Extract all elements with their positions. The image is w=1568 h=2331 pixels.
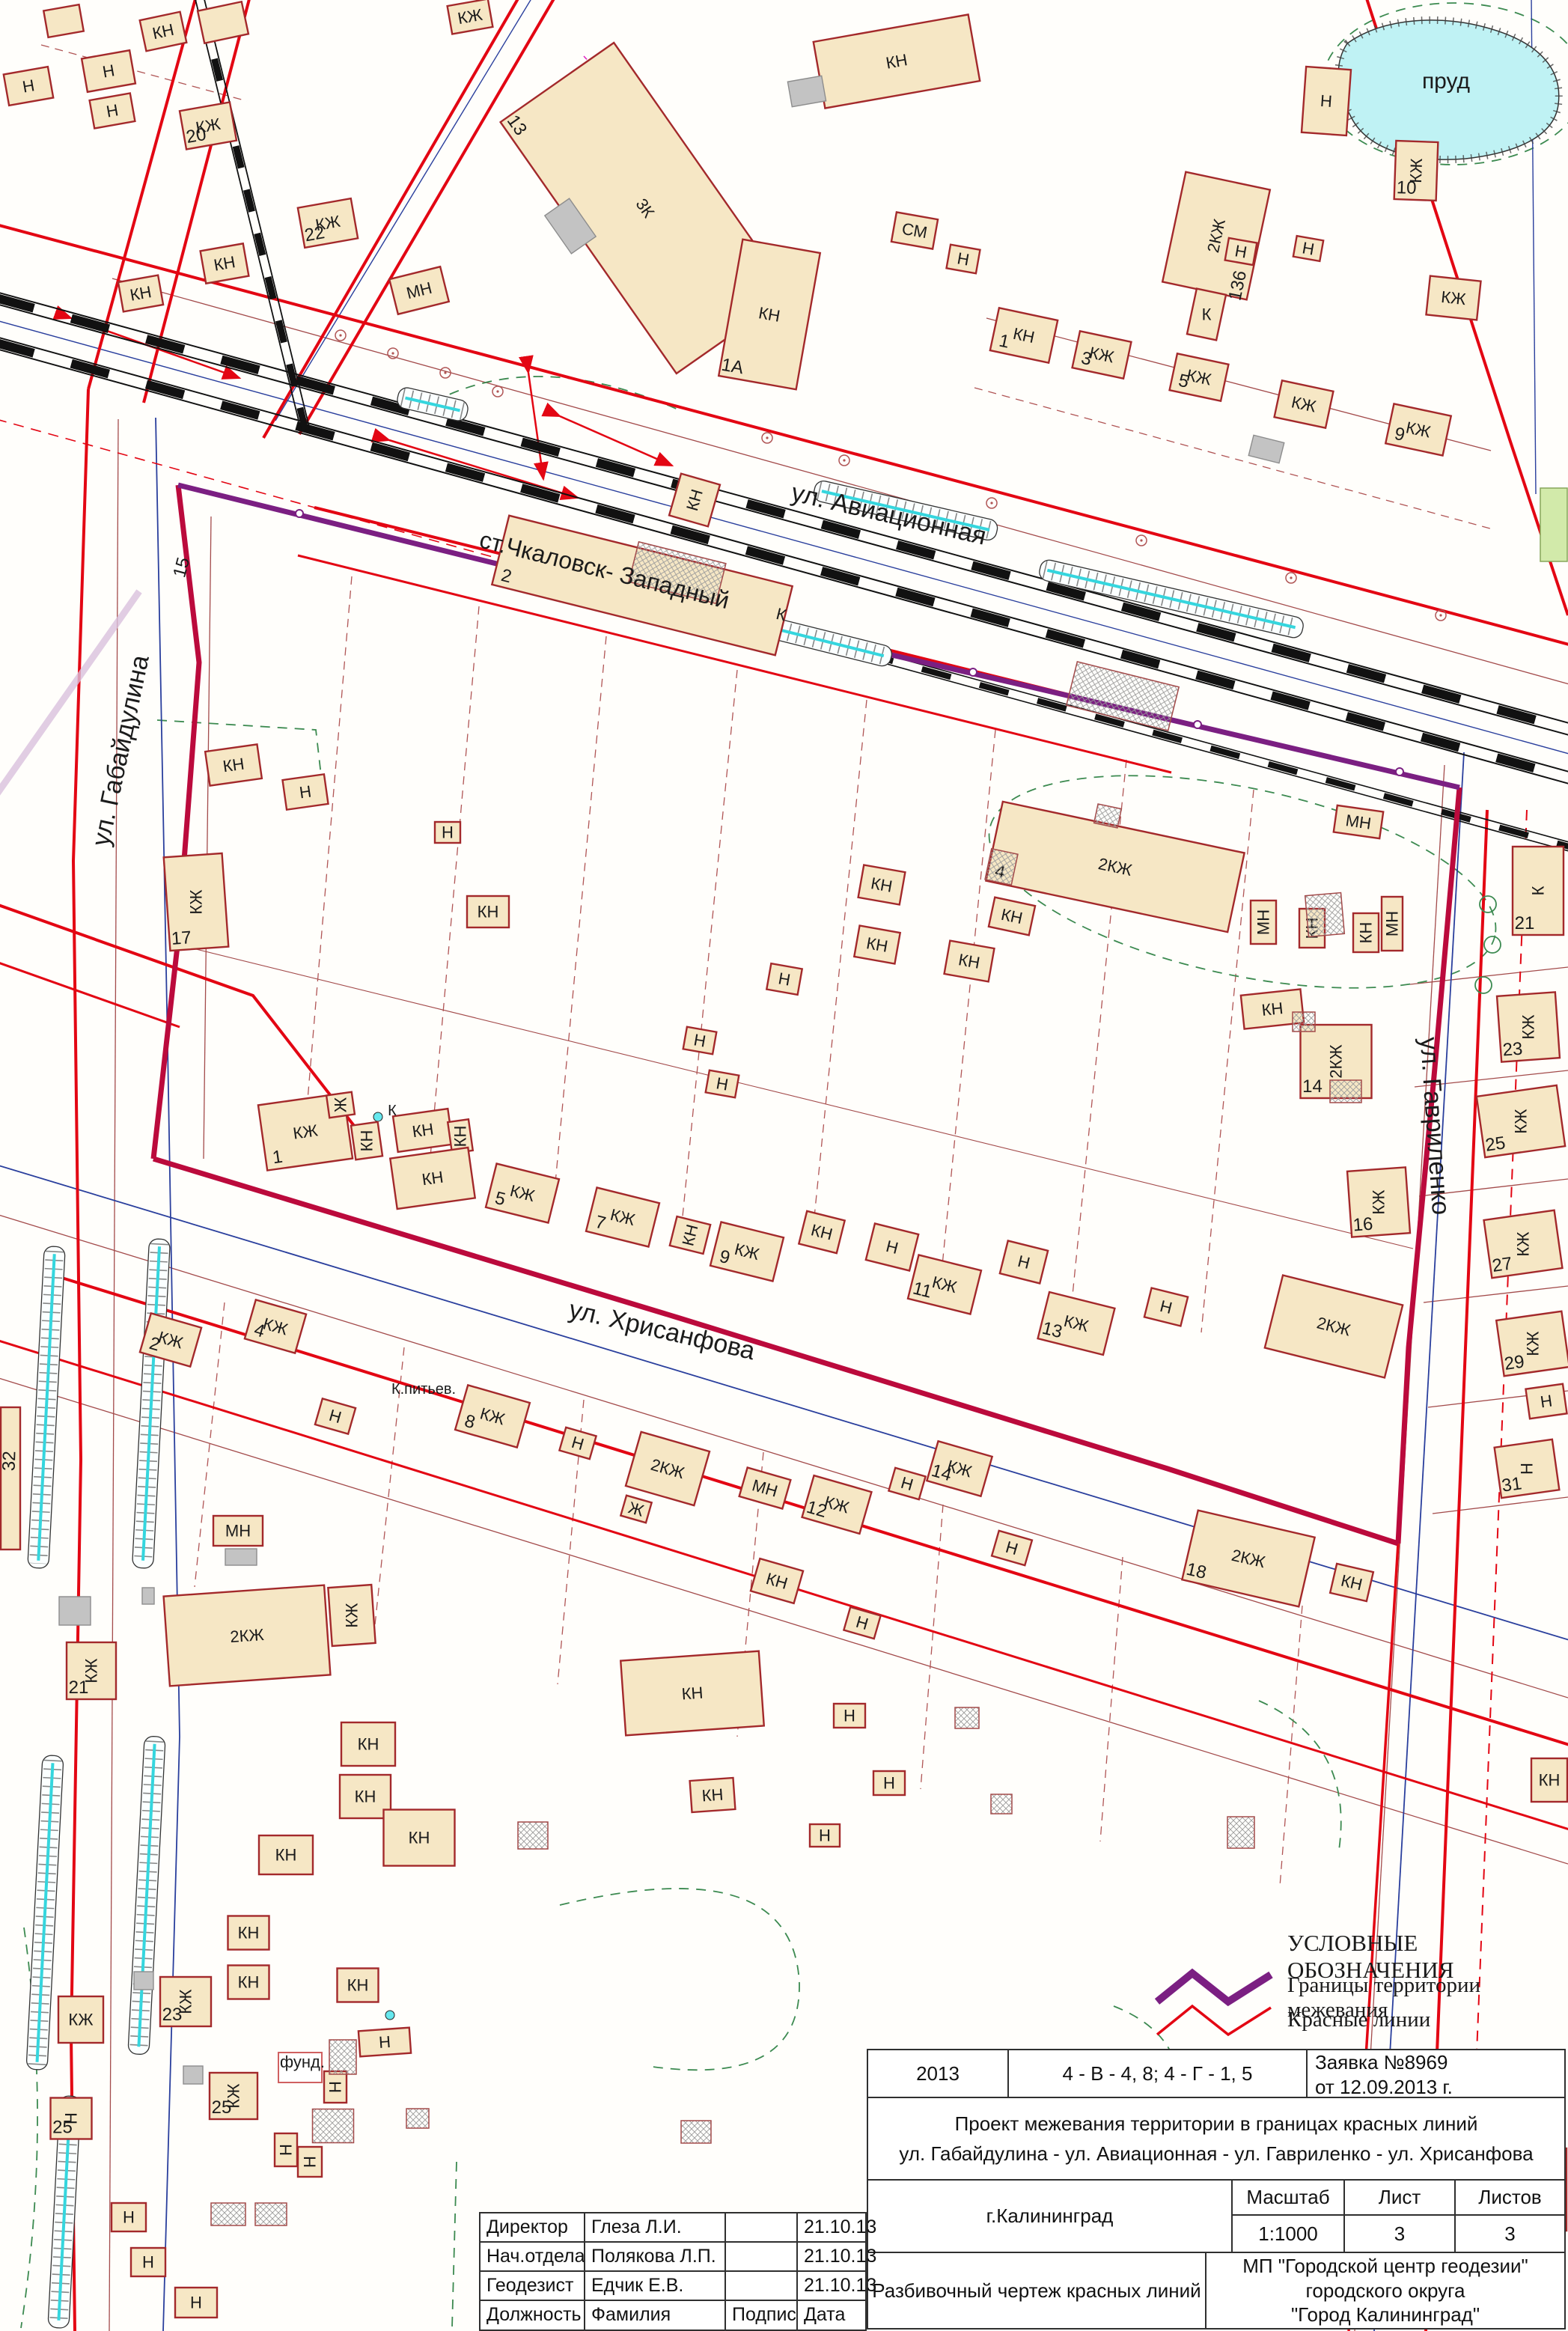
building-label: КН (238, 1924, 260, 1942)
building-number: 17 (171, 927, 192, 949)
building-label: К (1202, 305, 1212, 323)
building-label: 2КЖ (1327, 1044, 1346, 1079)
building: Н (282, 774, 328, 809)
tb-role-cell: Геодезист (479, 2270, 585, 2301)
building-label: МН (225, 1522, 251, 1541)
building: Н (873, 1771, 905, 1795)
building-label: Н (301, 2156, 320, 2168)
gray-annex (787, 76, 826, 106)
tb-sign-cell (724, 2212, 798, 2243)
building: Н (810, 1824, 840, 1847)
building: КЖ13 (1038, 1292, 1115, 1355)
building: Н (947, 245, 980, 273)
building-label: КН (478, 903, 499, 921)
building: Н (1302, 67, 1351, 135)
hatched-structure (518, 1822, 548, 1849)
building: Н (1000, 1241, 1048, 1284)
hatched-structure (329, 2040, 356, 2074)
map-label: ул. Хрисанфова (567, 1295, 758, 1365)
tb-sign-cell: Подпись (724, 2300, 798, 2331)
legend-item-redlines: Красные линии (1287, 2008, 1430, 2032)
building: Н (683, 1027, 717, 1054)
building: Н (1144, 1288, 1188, 1326)
building: 2КЖ (164, 1585, 331, 1686)
building-label: КН (957, 950, 982, 972)
building: Н25 (51, 2098, 92, 2139)
building-label: КН (1260, 999, 1284, 1020)
building-label: КН (238, 1973, 260, 1992)
building-number: 25 (212, 2097, 232, 2118)
building-label: Н (844, 1707, 855, 1725)
map-label: К (388, 1103, 397, 1119)
building: 2КЖ (1265, 1276, 1403, 1378)
building: КЖ16 (1347, 1167, 1410, 1237)
building: КН (384, 1810, 455, 1866)
cadastral-map-sheet: { "legend": { "title": "УСЛОВНЫЕ ОБОЗНАЧ… (0, 0, 1568, 2331)
building-label: КН (757, 303, 782, 326)
tree-symbol-green (1475, 977, 1492, 993)
building: КН (670, 1216, 710, 1254)
map-label: пруд (1422, 69, 1470, 94)
building: КН (351, 1122, 382, 1160)
building-label: Н (1518, 1463, 1537, 1475)
legend-red-zigzag (1157, 2006, 1271, 2035)
building: Н (359, 2028, 411, 2057)
building-label: КН (885, 50, 909, 73)
building-label: КЖ (1440, 287, 1467, 308)
building: КН (1353, 913, 1379, 952)
building: Н (315, 1398, 356, 1433)
building-label: КЖ (1524, 1331, 1543, 1356)
gray-annex (1248, 435, 1284, 463)
building: КН (858, 865, 906, 904)
building-label: Н (190, 2294, 202, 2312)
building-label: КН (451, 1126, 470, 1148)
building-label: КН (347, 1976, 369, 1995)
building-label: КН (129, 282, 153, 305)
building: КН (854, 926, 900, 964)
building-label: КН (358, 1130, 376, 1152)
building: КН (338, 1969, 379, 2002)
building: Н (766, 963, 802, 995)
building: Н (992, 1531, 1032, 1565)
tb-sheet-label: Лист (1343, 2179, 1456, 2216)
building-label: КН (222, 755, 245, 776)
building: Н (888, 1468, 925, 1499)
building: КЖ11 (908, 1255, 981, 1314)
building-number: 21 (1515, 913, 1535, 933)
building-number: 25 (52, 2118, 73, 2138)
building-label: КН (701, 1785, 724, 1806)
tb-project-title: Проект межевания территории в границах к… (867, 2097, 1566, 2181)
building-label: МН (1254, 909, 1273, 935)
building: КН (467, 896, 509, 927)
legend-swatches (1151, 1952, 1282, 2042)
tb-drawing-title: Разбивочный чертеж красных линий (867, 2252, 1206, 2330)
building-label: КН (213, 252, 237, 275)
building-label: КН (358, 1735, 379, 1754)
building: КЖ (328, 1585, 375, 1646)
building-number: 27 (1491, 1253, 1513, 1276)
building-label: МН (1383, 911, 1402, 936)
tb-request: Заявка №8969 от 12.09.2013 г. (1306, 2049, 1566, 2098)
tree-symbol-green (1484, 936, 1501, 953)
building: КН (259, 1835, 313, 1874)
building: МН (389, 266, 449, 314)
building: КЖ17 (164, 853, 229, 951)
building: КЖ9 (710, 1222, 784, 1281)
ditch (765, 617, 894, 668)
building-label: КН (1357, 922, 1376, 944)
building-label: КН (421, 1168, 445, 1189)
building-label: КЖ (343, 1603, 362, 1628)
building-label: Н (1320, 91, 1333, 111)
building-number: 16 (1352, 1214, 1374, 1236)
layer-gray-annexes (59, 76, 1284, 2084)
tb-scale-value: 1:1000 (1231, 2214, 1345, 2253)
hatched-structure (955, 1707, 979, 1728)
building: МН (739, 1468, 791, 1509)
legend-purple-zigzag (1157, 1973, 1271, 2002)
building-number: 10 (1396, 177, 1417, 198)
hatched-structure (211, 2203, 245, 2225)
building: Н (112, 2203, 146, 2231)
building-label: КЖ (68, 2011, 94, 2029)
building-label: Н (277, 2144, 296, 2156)
gray-annex (134, 1972, 153, 1990)
tb-role-cell: Директор (479, 2212, 585, 2243)
building-label: Н (819, 1826, 831, 1845)
building: СМ (891, 212, 938, 249)
tb-date-cell: Дата (796, 2300, 867, 2331)
building: КЖ (1275, 380, 1334, 427)
building: КН (814, 14, 980, 108)
building-label: Н (142, 2253, 154, 2272)
building-label: 2КЖ (229, 1625, 265, 1646)
building: КЖ5 (1170, 353, 1229, 400)
building: КЖ25 (1477, 1085, 1565, 1157)
building: КЖ4 (245, 1299, 306, 1353)
tb-city: г.Калининград (867, 2179, 1233, 2253)
building: Н31 (1495, 1439, 1560, 1498)
building: КЖ20 (180, 102, 237, 149)
hatched-structure (313, 2109, 354, 2143)
building: КЖ8 (455, 1385, 530, 1447)
building-label: Н (883, 1774, 895, 1793)
building: КН1 (990, 308, 1058, 362)
hatched-structure (1227, 1817, 1254, 1848)
tb-role-cell: Нач.отдела (479, 2241, 585, 2272)
building-number: 14 (1302, 1076, 1323, 1097)
building: КН (118, 275, 163, 312)
building: КН (1330, 1564, 1373, 1601)
building: КН (989, 898, 1035, 936)
building: МН (213, 1516, 263, 1546)
building: КЖ5 (486, 1163, 559, 1222)
tb-date-cell: 21.10.13 (796, 2241, 867, 2272)
building: КН (205, 744, 262, 785)
building: Ж (620, 1496, 651, 1523)
tb-name-cell: Полякова Л.П. (584, 2241, 726, 2272)
hatched-structure (985, 849, 1018, 886)
building: К21 (1513, 847, 1564, 935)
tb-name-cell: Едчик Е.В. (584, 2270, 726, 2301)
hatched-structure (1094, 804, 1122, 828)
gray-annex (142, 1588, 154, 1604)
building: КН (201, 243, 249, 283)
building-label: КЖ (187, 889, 206, 915)
building: Н (175, 2288, 217, 2318)
building: Н (90, 94, 135, 129)
building-label: КН (355, 1788, 376, 1806)
building: Н (435, 822, 460, 843)
building: КН (393, 1109, 453, 1152)
hatched-structure (1305, 893, 1345, 937)
building (43, 4, 84, 37)
well (385, 2011, 394, 2020)
building: КН (390, 1148, 475, 1209)
building-label: Н (442, 823, 454, 842)
tb-name-cell: Фамилия (584, 2300, 726, 2331)
building: Н (4, 67, 53, 106)
building: Н (844, 1607, 880, 1639)
tb-name-cell: Глеза Л.И. (584, 2212, 726, 2243)
ditch (28, 1246, 65, 1569)
tb-sign-cell (724, 2270, 798, 2301)
building-number: 31 (1501, 1473, 1523, 1496)
building-number: 23 (1502, 1039, 1524, 1061)
building-number: 23 (162, 2005, 183, 2025)
building: КЖ27 (1484, 1210, 1563, 1278)
building: Н (706, 1070, 739, 1097)
building-label: КН (1539, 1771, 1561, 1790)
building-number: 22 (303, 222, 326, 246)
building-label: КН (865, 933, 890, 956)
building: КЖ (1426, 276, 1480, 320)
building: 2КЖ (626, 1432, 710, 1505)
building: Н (131, 2248, 165, 2276)
tb-date-cell: 21.10.13 (796, 2270, 867, 2301)
building-number: 20 (185, 124, 208, 147)
building: Н (1293, 236, 1323, 261)
building: КЖ23 (160, 1977, 211, 2026)
tb-organization: МП "Городской центр геодезии" городского… (1205, 2252, 1566, 2330)
building: КЖ29 (1496, 1311, 1568, 1377)
building-label: КЖ (292, 1121, 320, 1142)
building: Н (834, 1704, 865, 1728)
building: Н (559, 1427, 596, 1459)
map-label: фунд. (280, 2053, 325, 2071)
building-label: КН (409, 1829, 430, 1847)
tb-date-cell: 21.10.13 (796, 2212, 867, 2243)
building: Н (324, 2071, 347, 2103)
building: КН (341, 1722, 395, 1766)
tb-sign-cell (724, 2241, 798, 2272)
building: Н (1225, 238, 1257, 265)
tb-sheet-code: 4 - В - 4, 8; 4 - Г - 1, 5 (1007, 2049, 1308, 2098)
building: КН (690, 1778, 736, 1812)
legend: УСЛОВНЫЕ ОБОЗНАЧЕНИЯ Границы территории … (1151, 1930, 1567, 2044)
map-label: ул. Габайдулина (87, 653, 155, 849)
gray-annex (59, 1597, 91, 1625)
hatched-structure (681, 2121, 711, 2143)
building: КН (751, 1558, 803, 1603)
hatched-structure (406, 2109, 429, 2128)
building: КЖ10 (1394, 141, 1439, 201)
building-label: КЖ (1370, 1189, 1388, 1215)
map-label: 32 (0, 1451, 19, 1472)
building: КН (228, 1966, 269, 1999)
building: КЖ (448, 0, 493, 34)
building-label: Н (378, 2032, 391, 2052)
building: КЖ7 (586, 1187, 659, 1246)
building-label: КН (411, 1120, 435, 1142)
building: КЖ (58, 1996, 103, 2043)
building: Н (82, 50, 135, 92)
building: Н (1525, 1384, 1567, 1419)
building-label: Ж (332, 1097, 350, 1112)
building: К (1187, 289, 1226, 341)
building: КН (140, 12, 187, 52)
building-label: КЖ (1512, 1109, 1531, 1134)
building: КЖ22 (298, 198, 358, 248)
building: КЖ9 (1385, 403, 1451, 455)
building: КН (1531, 1758, 1567, 1802)
gray-annex (225, 1549, 257, 1565)
building-label: КН (870, 874, 894, 896)
building-label: Н (123, 2208, 135, 2227)
building-number: 29 (1503, 1351, 1525, 1374)
building: КН (799, 1211, 844, 1253)
building-number: 25 (1484, 1133, 1507, 1155)
building-label: КЖ (1519, 1014, 1538, 1040)
building: МН (1334, 805, 1383, 838)
tb-sheets-label: Листов (1454, 2179, 1566, 2216)
building: Н (866, 1223, 918, 1270)
hatched-structure (1293, 1012, 1315, 1032)
tb-sheet-value: 3 (1343, 2214, 1456, 2253)
building: КЖ23 (1497, 992, 1560, 1061)
building: КЖ12 (802, 1475, 872, 1534)
building: 2КЖ136 (1162, 172, 1270, 303)
green-area (1540, 488, 1567, 561)
building-label: Н (326, 2081, 345, 2093)
tb-scale-label: Масштаб (1231, 2179, 1345, 2216)
building: КН (945, 941, 995, 982)
tb-sheets-value: 3 (1454, 2214, 1566, 2253)
building-number: 1А (720, 355, 745, 379)
building: Н (275, 2133, 297, 2166)
building-label: МН (1344, 811, 1372, 833)
building-number: 21 (69, 1678, 89, 1698)
building: Ж (326, 1092, 355, 1118)
boundary-red-lines-crimson (153, 485, 199, 1159)
building: КЖ25 (210, 2073, 257, 2119)
building: КЖ3 (1073, 331, 1132, 378)
tb-year: 2013 (867, 2049, 1009, 2098)
building: КЖ14 (927, 1441, 992, 1496)
building: МН (1382, 897, 1403, 951)
building: МН (1251, 901, 1276, 944)
building-label: КН (681, 1683, 704, 1704)
building: КН (620, 1651, 764, 1736)
building: 2КЖ18 (1182, 1511, 1314, 1607)
hatched-structure (255, 2203, 287, 2225)
building-label: К (1529, 886, 1548, 895)
building: КЖ21 (67, 1642, 116, 1699)
building: Н (298, 2147, 322, 2177)
tb-role-cell: Должность (479, 2300, 585, 2331)
hatched-structure (991, 1794, 1012, 1814)
building-label: КН (275, 1846, 297, 1865)
hatched-structure (1330, 1080, 1361, 1103)
ditch (132, 1239, 171, 1569)
map-label: К.питьев. (391, 1381, 456, 1398)
building (1, 1407, 20, 1550)
building: КН (228, 1916, 269, 1950)
well (373, 1112, 382, 1121)
gray-annex (183, 2066, 203, 2084)
building-label: КЖ (1514, 1231, 1533, 1257)
